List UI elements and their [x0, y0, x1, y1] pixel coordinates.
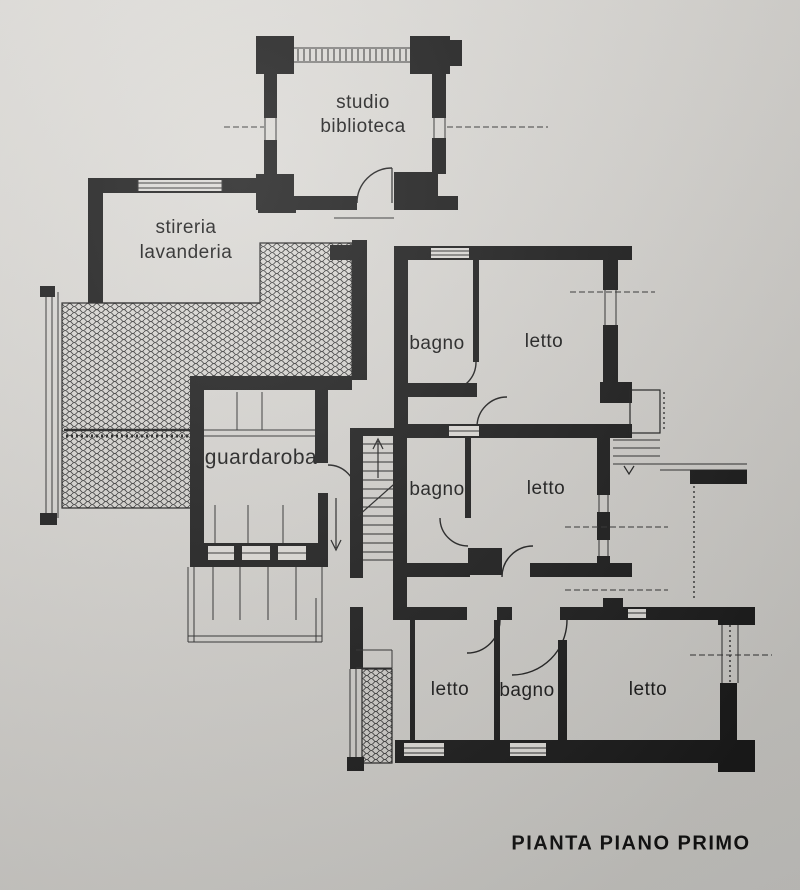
room-label-bagno-nord: bagno — [409, 333, 464, 355]
room-label-letto-nord: letto — [525, 331, 563, 353]
south-west-balcony — [188, 567, 322, 642]
east-balcony-steps — [613, 390, 747, 598]
room-guardaroba-walls — [190, 376, 356, 567]
room-label-letto-centro: letto — [527, 478, 565, 500]
room-label-letto-sud-est: letto — [629, 679, 667, 701]
room-label-bagno-centro: bagno — [409, 479, 464, 501]
room-label-letto-sud-ovest: letto — [431, 679, 469, 701]
room-label-guardaroba: guardaroba — [205, 446, 317, 470]
middle-block-walls — [394, 438, 668, 590]
room-studio-walls — [224, 70, 548, 210]
plan-title: PIANTA PIANO PRIMO — [511, 833, 750, 856]
room-label-stireria-line2: lavanderia — [140, 242, 233, 264]
room-label-stireria-line1: stireria — [155, 217, 216, 239]
roof-parapet — [256, 36, 462, 74]
room-label-studio-line2: biblioteca — [320, 116, 405, 138]
staircase — [331, 428, 407, 620]
south-hatched-balcony — [347, 607, 392, 771]
floor-plan-page: studio biblioteca stireria lavanderia gu… — [0, 0, 800, 890]
room-label-studio-line1: studio — [336, 92, 390, 114]
terrace-railing — [40, 286, 58, 525]
room-label-bagno-sud: bagno — [499, 680, 554, 702]
